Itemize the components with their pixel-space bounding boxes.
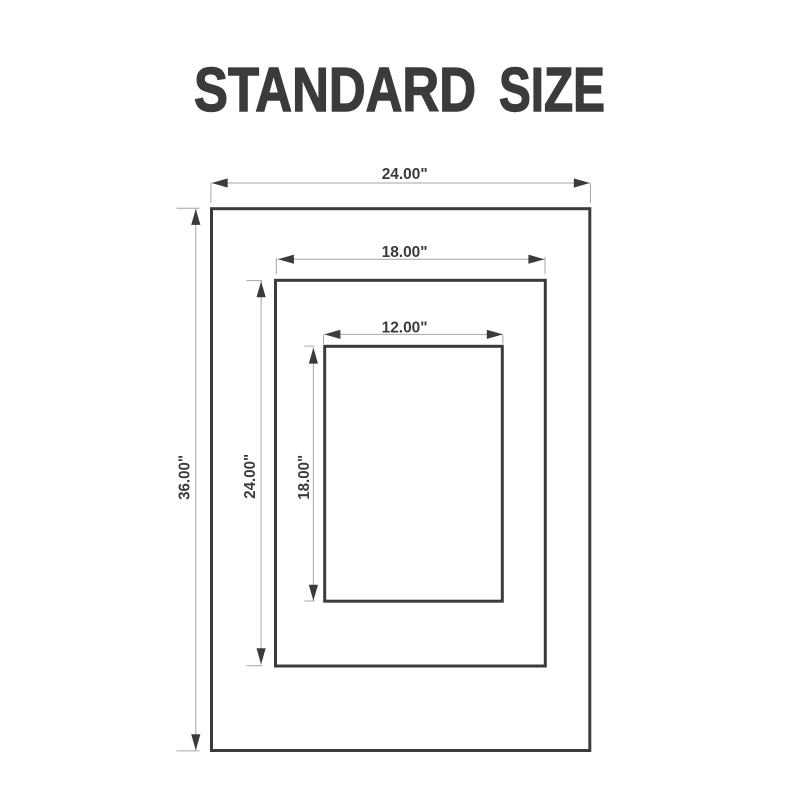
svg-text:18.00": 18.00"	[296, 455, 313, 500]
svg-text:36.00": 36.00"	[177, 455, 194, 500]
svg-text:SIZE: SIZE	[499, 56, 605, 125]
svg-text:24.00": 24.00"	[382, 166, 428, 183]
svg-text:STANDARD: STANDARD	[194, 56, 476, 125]
svg-text:12.00": 12.00"	[382, 320, 428, 337]
svg-text:18.00": 18.00"	[382, 244, 428, 261]
svg-text:24.00": 24.00"	[242, 454, 259, 499]
